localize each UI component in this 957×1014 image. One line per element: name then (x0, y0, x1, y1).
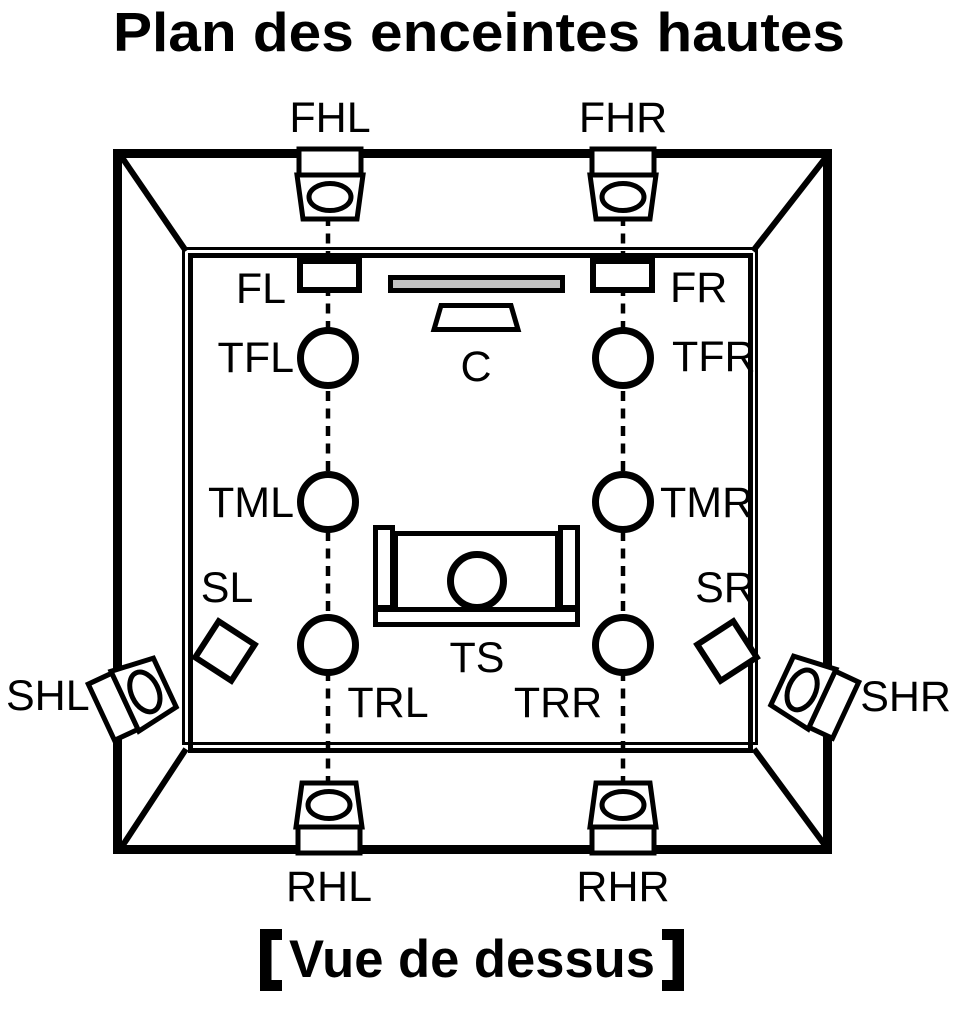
label-top-rear-right: TRR (514, 679, 602, 727)
label-surround-right: SR (695, 564, 755, 612)
surround-right-speaker (697, 621, 756, 680)
label-surround-height-left: SHL (6, 672, 90, 720)
label-top-middle-left: TML (208, 479, 294, 527)
top-rear-left-speaker (301, 618, 356, 673)
lenticular-bracket-right-icon (662, 929, 684, 991)
perspective-edge-bottom-left (121, 749, 186, 848)
surround-height-right-speaker (768, 651, 859, 740)
top-front-right-speaker (596, 331, 651, 386)
center-speaker (434, 306, 518, 330)
view-caption: Vue de dessus (289, 930, 655, 989)
label-surround-height-right: SHR (860, 673, 951, 721)
label-front-left: FL (236, 265, 286, 313)
rear-height-right-speaker (590, 783, 656, 853)
top-rear-right-speaker (596, 618, 651, 673)
label-top-rear-left: TRL (347, 679, 428, 727)
label-front-height-right: FHR (579, 94, 667, 142)
perspective-edge-top-left (121, 156, 186, 251)
lenticular-bracket-left-icon (260, 929, 282, 991)
perspective-edge-top-right (753, 156, 827, 251)
top-middle-right-speaker (596, 475, 651, 530)
surround-height-left-speaker (87, 653, 178, 742)
front-right-speaker-box (593, 261, 652, 290)
label-front-height-left: FHL (289, 94, 370, 142)
front-left-speaker-box (300, 261, 359, 290)
front-height-left-speaker (297, 149, 363, 219)
label-surround-left: SL (201, 564, 254, 612)
diagram-canvas: FHL FHR FL FR C TFL TFR TML TMR SL SR SH… (0, 0, 957, 1014)
surround-left-speaker (195, 621, 254, 680)
label-top-front-left: TFL (218, 334, 294, 382)
label-top-surround: TS (450, 634, 505, 682)
front-height-right-speaker (590, 149, 656, 219)
perspective-edge-bottom-right (754, 749, 827, 848)
rear-height-left-speaker (296, 783, 362, 853)
label-front-right: FR (670, 264, 727, 312)
label-rear-height-left: RHL (286, 863, 372, 911)
page-title: Plan des enceintes hautes (113, 1, 845, 63)
label-center: C (460, 343, 491, 391)
top-surround-speaker (451, 555, 504, 608)
top-middle-left-speaker (301, 475, 356, 530)
tv-screen (391, 278, 563, 291)
top-front-left-speaker (301, 331, 356, 386)
label-rear-height-right: RHR (576, 863, 669, 911)
speaker-layout-diagram: FHL FHR FL FR C TFL TFR TML TMR SL SR SH… (0, 0, 957, 1014)
label-top-middle-right: TMR (660, 479, 753, 527)
label-top-front-right: TFR (672, 333, 756, 381)
